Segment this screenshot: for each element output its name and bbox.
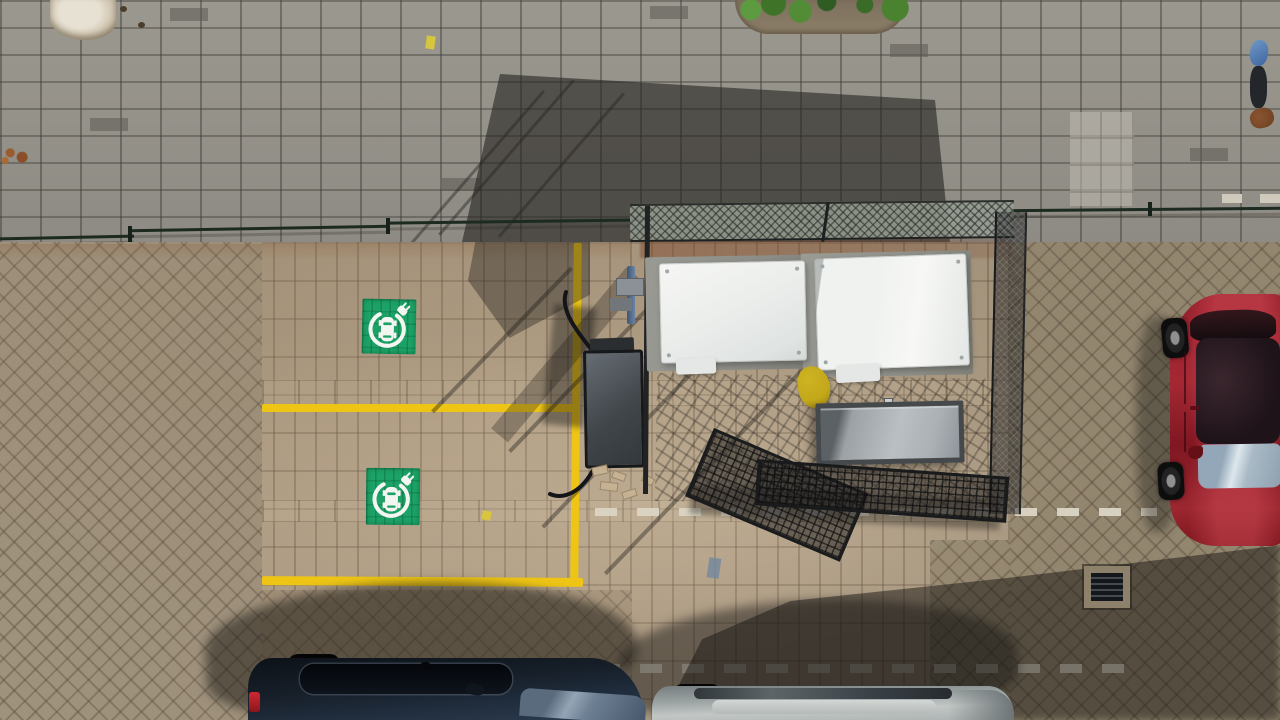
screw xyxy=(797,351,801,355)
silver-car-window-strip xyxy=(694,688,952,699)
debris-brick xyxy=(591,464,609,476)
dark-paver xyxy=(170,8,208,21)
tree-pit-speck xyxy=(138,22,145,28)
fence-post xyxy=(128,226,132,242)
red-car-windshield xyxy=(1198,443,1280,488)
dark-paver xyxy=(90,118,128,131)
equipment-cabinet-1 xyxy=(659,260,807,363)
red-car-door-handle xyxy=(1190,406,1199,410)
drain-grate xyxy=(1084,566,1130,608)
tree-pit-speck xyxy=(120,6,127,12)
aerial-parking-photo xyxy=(0,0,1280,720)
debris-brick xyxy=(621,488,638,500)
red-car-roof xyxy=(1196,338,1280,444)
silver-car xyxy=(648,680,1018,720)
bush-foliage xyxy=(728,0,918,24)
screw xyxy=(960,356,964,360)
dark-blue-car xyxy=(244,648,648,720)
pedestrian xyxy=(1250,40,1280,126)
screw xyxy=(956,260,960,264)
dark-paver xyxy=(890,44,928,57)
pedestrian-blue-jacket xyxy=(1248,39,1269,67)
dark-paver xyxy=(1190,148,1228,161)
blue-car-taillight xyxy=(249,692,260,712)
debris-brick xyxy=(611,470,627,482)
red-car-door-seam xyxy=(1184,412,1186,452)
cabinet-foot xyxy=(836,363,881,383)
silver-car-front xyxy=(948,690,1014,720)
rust-debris xyxy=(0,144,34,166)
red-car-door-seam xyxy=(1184,352,1186,404)
silver-car-roof xyxy=(712,700,936,714)
screw xyxy=(667,353,671,357)
screw xyxy=(795,267,799,271)
small-equipment-box xyxy=(610,298,632,311)
equipment-cabinet-2 xyxy=(814,253,970,370)
fence-post xyxy=(386,218,390,234)
dashed-line-sidewalk xyxy=(1222,194,1280,203)
small-yellow-marker xyxy=(481,510,492,521)
fence-post xyxy=(1148,202,1152,216)
small-yellow-marker xyxy=(425,35,436,49)
screw xyxy=(665,269,669,273)
blue-car-antenna xyxy=(420,662,431,669)
screw xyxy=(820,264,824,268)
ev-charging-sign-1 xyxy=(362,299,417,355)
red-car-wheel xyxy=(1157,461,1185,500)
ev-charging-icon xyxy=(366,468,420,525)
red-car xyxy=(1170,294,1280,546)
cabinet-foot xyxy=(676,357,717,374)
ev-charging-sign-2 xyxy=(366,468,420,525)
dark-paver xyxy=(650,6,688,19)
screw xyxy=(824,360,828,364)
pedestrian-body xyxy=(1250,66,1267,108)
ev-charging-icon xyxy=(362,299,417,355)
small-equipment-box xyxy=(616,278,644,296)
red-car-mirror xyxy=(1188,446,1203,459)
metal-storage-box xyxy=(815,400,964,465)
charging-station xyxy=(583,349,645,468)
debris-brick xyxy=(600,481,619,492)
light-paver-patch xyxy=(1070,112,1134,206)
